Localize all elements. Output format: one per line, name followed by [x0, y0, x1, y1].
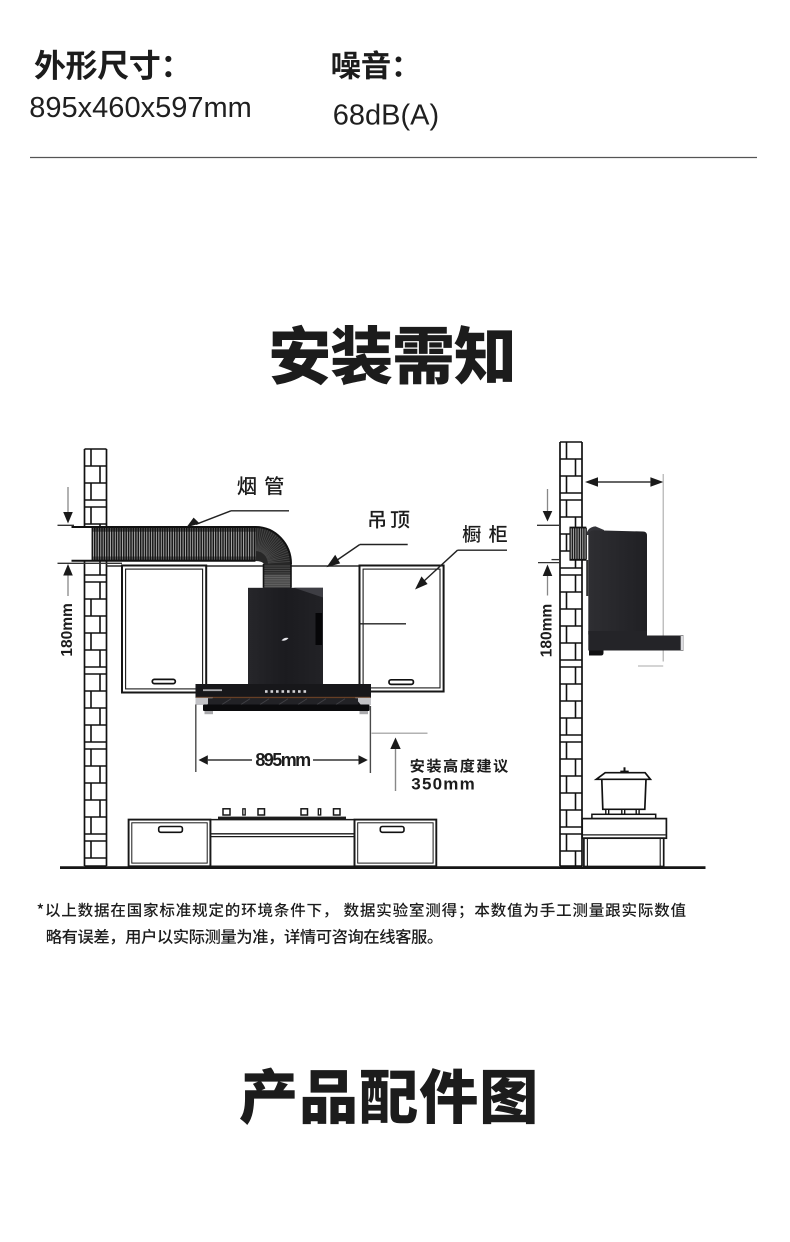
svg-text:350mm: 350mm	[411, 775, 476, 794]
svg-text:895x460x597mm: 895x460x597mm	[29, 92, 251, 124]
svg-text:180mm: 180mm	[539, 604, 556, 657]
svg-text:68dB(A): 68dB(A)	[333, 100, 439, 132]
svg-text:895mm: 895mm	[255, 750, 310, 770]
svg-text:180mm: 180mm	[59, 603, 76, 656]
